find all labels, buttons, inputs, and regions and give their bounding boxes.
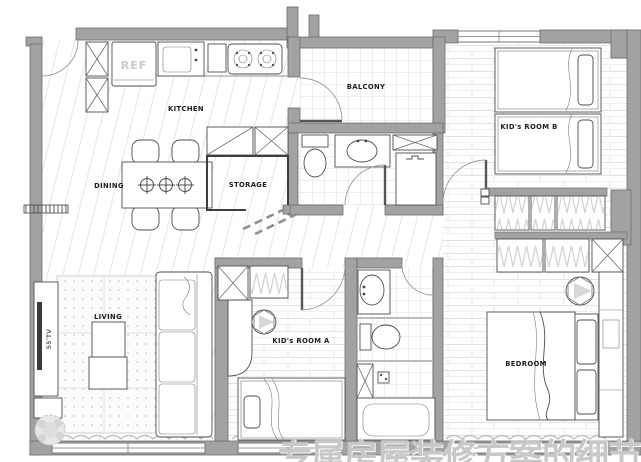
kids-b-top-window (458, 31, 540, 42)
balcony-kidsb-divider (433, 37, 445, 133)
floor-plan-drawing: REF KITCHEN DINING (0, 0, 641, 462)
balcony-top-stub-2 (309, 15, 319, 40)
place-settings (138, 176, 194, 194)
dining-chair (172, 140, 199, 164)
balcony-bottom-wall (288, 123, 443, 133)
bedroom: BEDROOM (487, 232, 627, 437)
kids-a-bottom-window (238, 443, 338, 453)
bath-top-left-wall (288, 133, 298, 215)
tv (37, 302, 42, 370)
kids-a-stool (252, 310, 276, 334)
bathroom-sink (335, 135, 390, 167)
wall-radiator (24, 205, 68, 213)
bath-top-bottom-wall-right (385, 205, 443, 215)
master-sink (358, 270, 390, 314)
bathtub (357, 398, 435, 440)
top-right-corner-wall (611, 30, 627, 58)
refrigerator-label: REF (121, 59, 148, 72)
tv-label: 55'TV (46, 329, 53, 349)
wardrobe-row-1 (481, 188, 607, 230)
storage-label: STORAGE (229, 181, 267, 189)
bedroom-label: BEDROOM (505, 360, 546, 368)
living-bottom-window (52, 443, 205, 453)
bedroom-side-unit (599, 272, 623, 437)
dining-chair (172, 206, 199, 230)
refrigerator: REF (112, 42, 156, 86)
balcony-label: BALCONY (347, 83, 386, 91)
bedroom-bottom-window (450, 443, 608, 453)
kitchen-board (208, 44, 226, 72)
dining-label: DINING (94, 182, 124, 190)
balcony-left-wall-lower (288, 108, 300, 123)
wardrobe-row-2 (495, 232, 627, 272)
side-cabinet (34, 398, 62, 418)
floor-drain (378, 372, 389, 383)
tv-console: 55'TV (34, 282, 58, 396)
top-kitchen-wall (76, 28, 287, 40)
bedroom-stool (566, 277, 594, 305)
pillow (578, 55, 593, 105)
living-label: LIVING (94, 313, 122, 321)
bath-cabinet-x (357, 364, 373, 398)
dining-chair (132, 140, 159, 164)
washer-cabinet (393, 135, 437, 205)
pillow (577, 320, 596, 364)
kids-room-a-label: KID's ROOM A (272, 337, 330, 345)
master-toilet (360, 324, 400, 350)
pillow (244, 396, 260, 428)
toilet (302, 135, 328, 177)
kids-b-bed-1 (495, 48, 601, 112)
floor-plan: REF KITCHEN DINING (0, 0, 641, 462)
plant (35, 415, 65, 445)
stove (228, 44, 282, 74)
balcony-top-wall (287, 37, 433, 48)
pillow (578, 120, 593, 168)
kids-room-b-label: KID's ROOM B (500, 123, 557, 131)
kids-a-bed (238, 378, 345, 440)
kitchen-label: KITCHEN (168, 105, 204, 113)
balcony-top-stub-1 (287, 7, 298, 40)
pillow (577, 370, 596, 414)
kids-a-bath-divider (345, 258, 357, 441)
hinge (481, 197, 489, 204)
sofa (156, 272, 212, 437)
bath-master-top-wall (357, 258, 402, 268)
balcony-left-wall-upper (288, 37, 300, 77)
dining-chair (132, 206, 159, 230)
kids-a-desk (228, 300, 252, 376)
hinge (481, 189, 489, 196)
kids-a-wardrobe (218, 266, 288, 300)
kitchen-sink (158, 42, 204, 76)
washing-machine (396, 153, 436, 205)
coffee-table (89, 322, 127, 389)
